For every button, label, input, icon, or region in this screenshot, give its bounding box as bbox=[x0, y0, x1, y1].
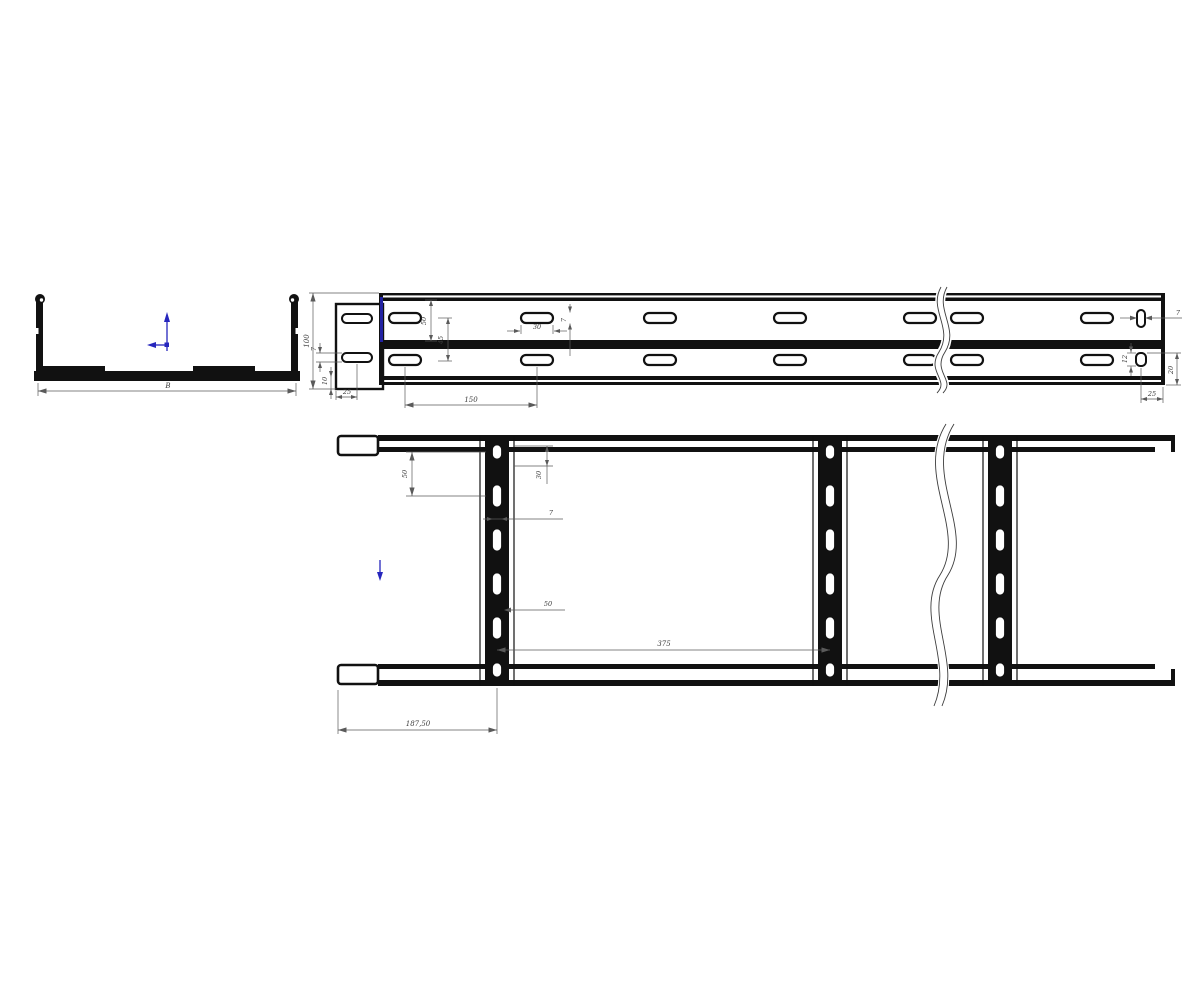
cross-section-view: B bbox=[34, 294, 300, 396]
side-view: 100 7 10 25 150 50 bbox=[303, 287, 1182, 408]
down-arrow-icon bbox=[377, 560, 383, 581]
plan-view: 50 30 7 50 375 187,50 bbox=[338, 424, 1175, 734]
plan-end-to-first-rung-label: 187,50 bbox=[406, 720, 431, 728]
section-bottom-return-right bbox=[193, 366, 255, 371]
plan-rung-2 bbox=[813, 436, 847, 686]
side-bottom-offset-label: 10 bbox=[321, 377, 329, 385]
side-web-gap-label: 45 bbox=[437, 336, 445, 345]
side-end-slot-lower bbox=[1136, 353, 1146, 366]
section-wall-notch-left bbox=[36, 328, 39, 334]
side-end-slot-height-label: 12 bbox=[1121, 355, 1129, 363]
side-end-slot-width-label: 7 bbox=[1176, 309, 1181, 317]
section-bottom-return-left bbox=[43, 366, 105, 371]
plan-bottom-rail-end-cap bbox=[338, 665, 378, 684]
side-slot-height-label: 7 bbox=[310, 346, 318, 351]
section-top-hook-left bbox=[35, 294, 45, 304]
section-width-dimension: B bbox=[38, 382, 296, 396]
section-left-wall bbox=[36, 297, 43, 375]
coordinate-axis-icon bbox=[147, 312, 170, 351]
section-bottom-flange bbox=[34, 371, 300, 381]
engineering-drawing: B bbox=[0, 0, 1200, 1000]
section-right-wall bbox=[291, 297, 298, 375]
side-dimensions: 100 7 10 25 150 50 bbox=[303, 293, 1182, 408]
section-wall-notch-right bbox=[296, 328, 299, 334]
side-rail-right-edge bbox=[1161, 293, 1165, 385]
side-splice-slot-lower bbox=[342, 353, 372, 362]
side-slot-length-label: 30 bbox=[533, 323, 541, 331]
plan-edge-to-slot-label: 30 bbox=[535, 471, 543, 479]
section-top-hook-left-curl bbox=[40, 298, 43, 301]
section-top-hook-right-curl bbox=[291, 298, 294, 301]
plan-rung-pitch-label: 375 bbox=[657, 640, 671, 648]
side-end-horizontal-label: 25 bbox=[1147, 390, 1156, 398]
side-end-vertical-label: 20 bbox=[1167, 366, 1175, 375]
side-height-label: 100 bbox=[303, 334, 311, 348]
plan-rung-slot-width-label: 7 bbox=[549, 509, 554, 517]
drawing-canvas: B bbox=[0, 0, 1200, 1000]
plan-break-line bbox=[931, 424, 956, 706]
plan-bottom-rail bbox=[338, 664, 1175, 686]
plan-slot-dim-label: 50 bbox=[544, 600, 552, 608]
side-end-to-slot-label: 25 bbox=[342, 388, 351, 396]
side-end-slot-upper bbox=[1137, 310, 1145, 327]
plan-rung-slot-pitch-label: 50 bbox=[401, 470, 409, 478]
plan-rung-1 bbox=[480, 436, 514, 686]
plan-rung-3 bbox=[983, 436, 1017, 686]
section-top-hook-right bbox=[289, 294, 299, 304]
side-splice-slot-upper bbox=[342, 314, 372, 323]
side-lower-slots bbox=[389, 355, 1113, 365]
side-flange-gap-label: 50 bbox=[420, 317, 428, 325]
side-rail bbox=[379, 293, 1165, 385]
side-slot-pitch-label: 150 bbox=[464, 396, 478, 404]
section-width-label: B bbox=[164, 382, 170, 390]
side-mid-slot-height-label: 7 bbox=[560, 317, 568, 322]
side-upper-slots bbox=[389, 313, 1113, 323]
plan-dimensions: 50 30 7 50 375 187,50 bbox=[338, 446, 830, 734]
side-highlight-edge bbox=[380, 297, 383, 342]
plan-top-rail-end-cap bbox=[338, 436, 378, 455]
